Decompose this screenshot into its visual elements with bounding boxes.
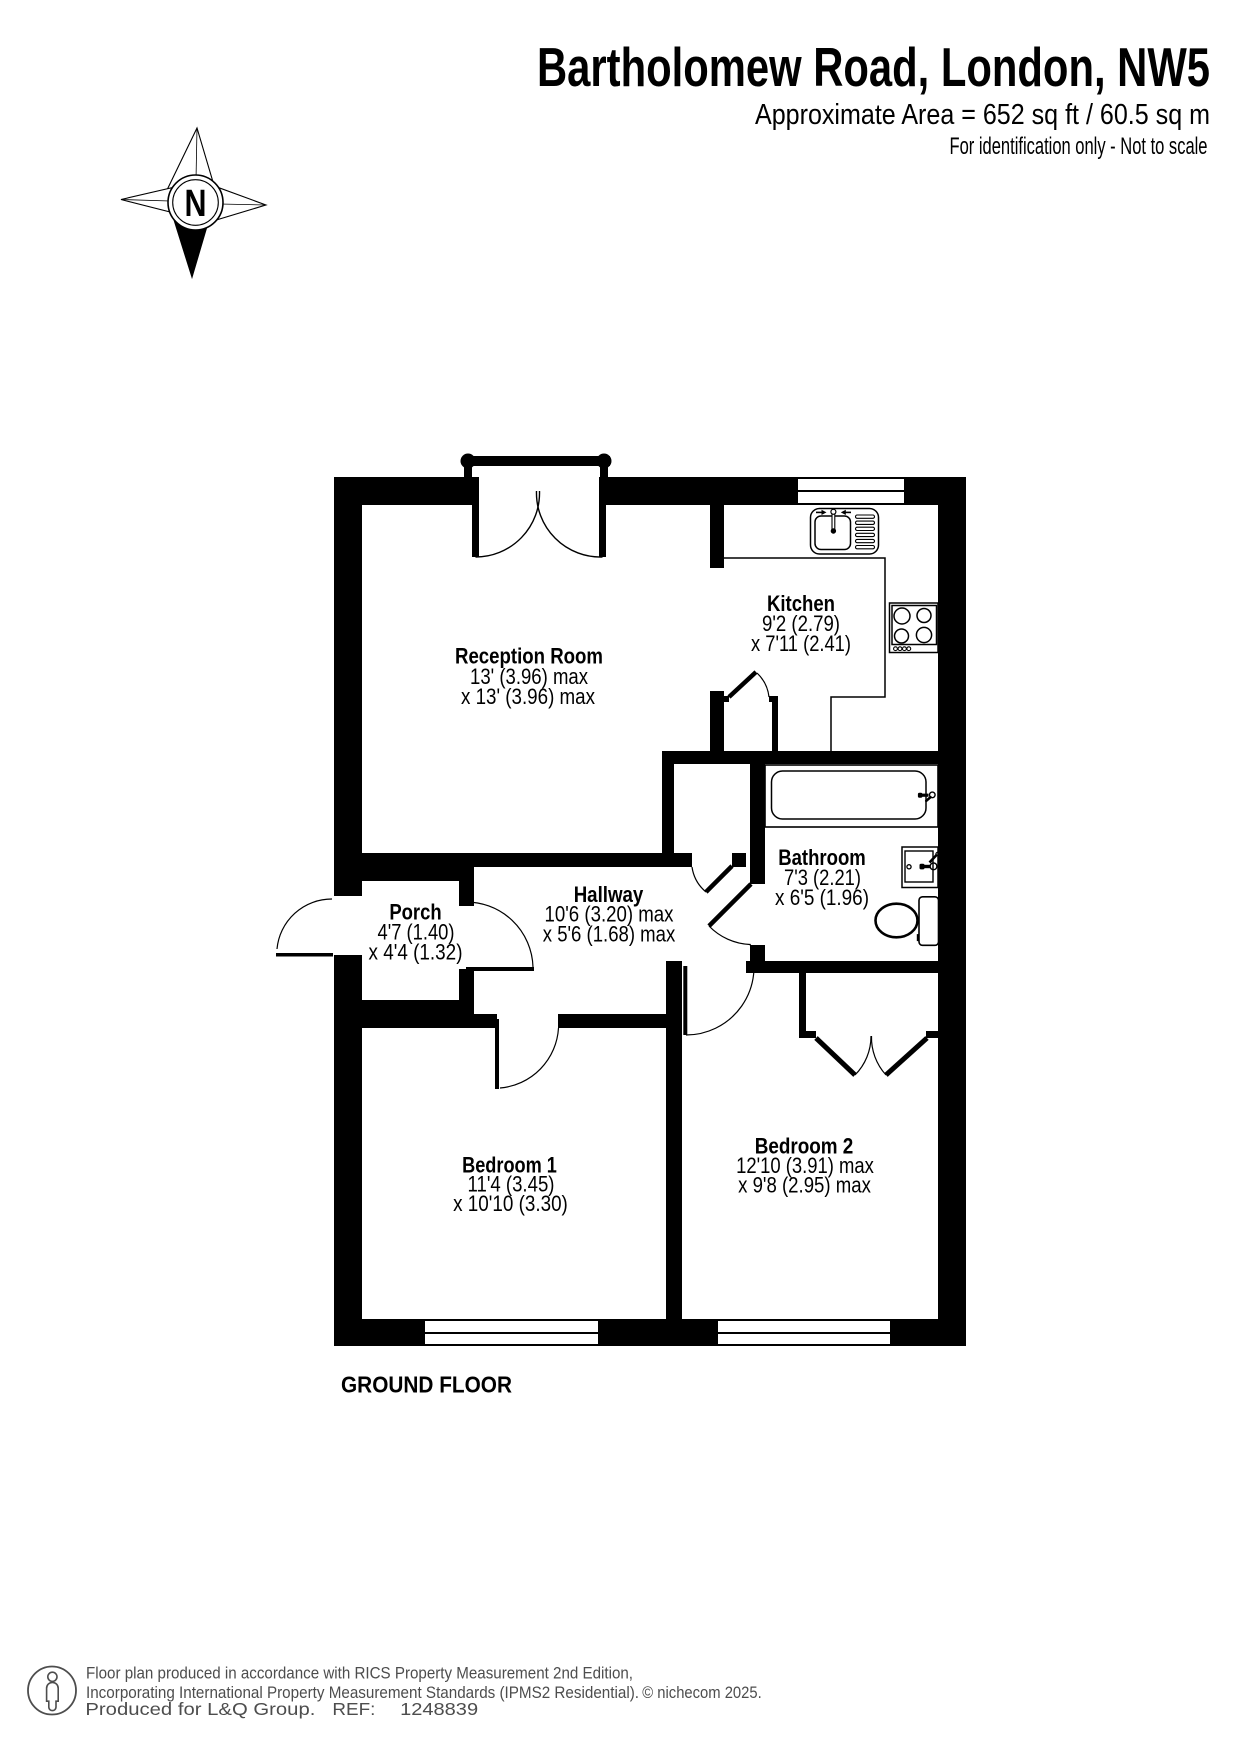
svg-text:x 9'8 (2.95) max: x 9'8 (2.95) max <box>738 1173 871 1198</box>
svg-text:x 6'5 (1.96): x 6'5 (1.96) <box>775 885 869 910</box>
svg-text:Approximate Area = 652 sq ft /: Approximate Area = 652 sq ft / 60.5 sq m <box>755 99 1210 131</box>
svg-text:x 5'6 (1.68) max: x 5'6 (1.68) max <box>543 922 676 947</box>
svg-text:For identification only - Not: For identification only - Not to scale <box>950 133 1208 160</box>
svg-text:REF:: REF: <box>332 1699 375 1719</box>
svg-text:© nichecom 2025.: © nichecom 2025. <box>642 1684 761 1702</box>
svg-text:Produced for L&Q Group.: Produced for L&Q Group. <box>85 1699 315 1719</box>
svg-text:GROUND FLOOR: GROUND FLOOR <box>341 1372 512 1398</box>
svg-text:x 13' (3.96) max: x 13' (3.96) max <box>461 684 595 709</box>
svg-text:x 7'11 (2.41): x 7'11 (2.41) <box>751 631 851 656</box>
svg-text:x 4'4 (1.32): x 4'4 (1.32) <box>369 940 463 965</box>
svg-text:x 10'10 (3.30): x 10'10 (3.30) <box>453 1191 568 1216</box>
svg-text:Floor plan produced in accorda: Floor plan produced in accordance with R… <box>86 1665 633 1683</box>
svg-text:N: N <box>185 183 207 225</box>
svg-text:1248839: 1248839 <box>400 1699 478 1719</box>
svg-text:Bartholomew Road, London, NW5: Bartholomew Road, London, NW5 <box>537 37 1210 98</box>
